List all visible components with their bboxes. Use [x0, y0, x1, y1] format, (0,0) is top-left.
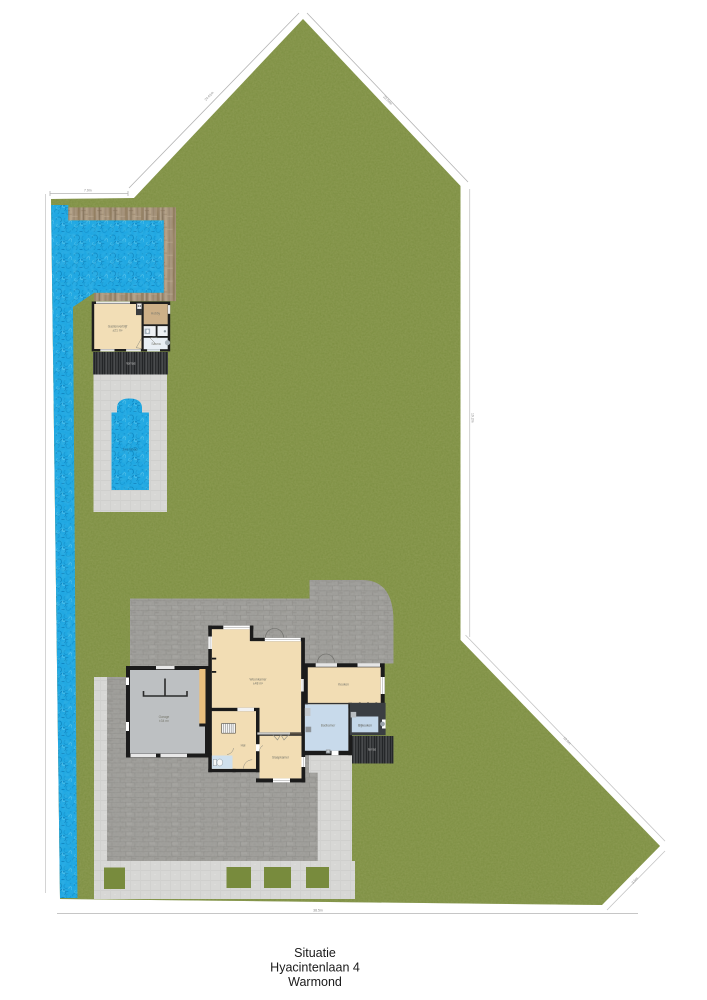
svg-text:terras: terras — [368, 748, 377, 752]
svg-text:±48 m²: ±48 m² — [253, 682, 263, 686]
svg-text:±34 m²: ±34 m² — [159, 719, 169, 723]
svg-text:38.5m: 38.5m — [313, 909, 323, 913]
svg-text:Slaapkamer: Slaapkamer — [272, 756, 290, 760]
svg-text:Hal: Hal — [241, 744, 246, 748]
svg-text:zwembad: zwembad — [123, 448, 138, 452]
svg-text:Bijkeuken: Bijkeuken — [358, 724, 372, 728]
svg-text:7.9m: 7.9m — [84, 189, 92, 193]
svg-text:Warmond: Warmond — [288, 975, 342, 989]
svg-text:Hobby: Hobby — [151, 312, 161, 316]
svg-text:Situatie: Situatie — [294, 946, 336, 960]
svg-text:Hyacintenlaan 4: Hyacintenlaan 4 — [270, 961, 360, 975]
svg-text:Keuken: Keuken — [338, 683, 349, 687]
svg-text:terras: terras — [127, 362, 136, 366]
svg-text:19.2m: 19.2m — [471, 413, 475, 423]
svg-text:Badkamer: Badkamer — [321, 724, 336, 728]
svg-text:±21 m²: ±21 m² — [113, 329, 123, 333]
svg-text:Sauna: Sauna — [151, 342, 160, 346]
